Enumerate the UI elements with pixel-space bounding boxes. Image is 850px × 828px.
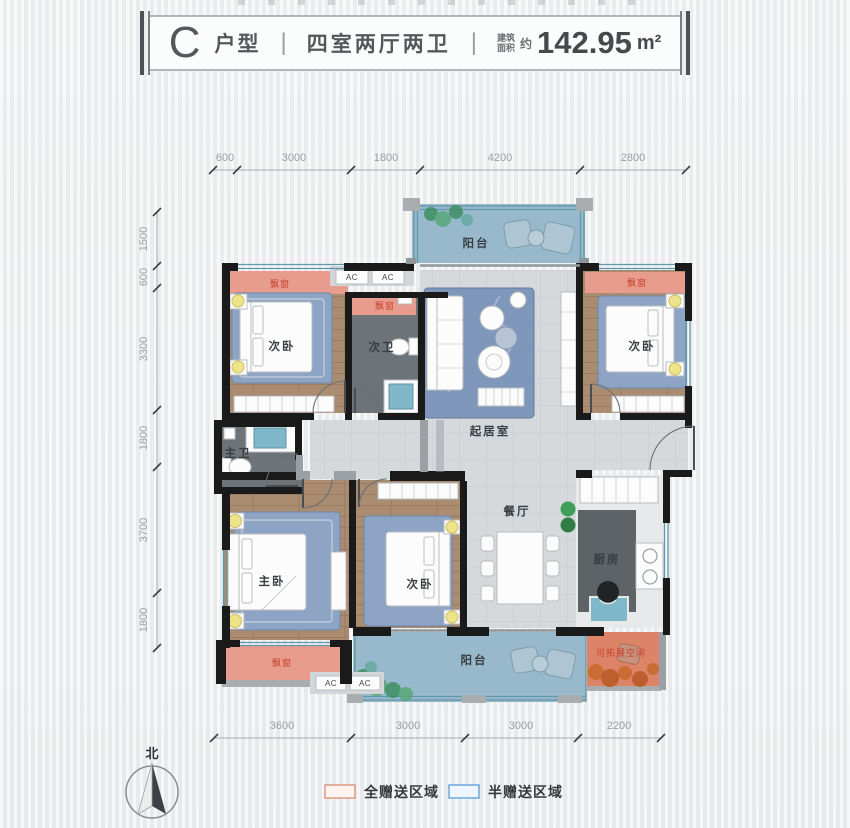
- balcony-bottom-label: 阳台: [461, 653, 488, 667]
- ac-label: AC: [382, 273, 394, 282]
- north-label: 北: [145, 746, 158, 761]
- dim-left-2: 3300: [138, 337, 150, 361]
- legend-label-half-gift: 半赠送区域: [488, 784, 563, 800]
- compass: 北: [126, 746, 178, 818]
- ac-label: AC: [359, 679, 371, 688]
- balcony-top-label: 阳台: [463, 236, 490, 250]
- floorplan-page: C 户型 | 四室两厅两卫 | 建筑 面积 约 142.95 m²: [0, 0, 850, 828]
- dim-top-1: 3000: [282, 152, 306, 164]
- bath-master-label: 主卫: [225, 446, 252, 460]
- dimension-bottom: 3600 3000 3000 2200: [210, 720, 665, 742]
- bay-window-label: 飘窗: [627, 277, 647, 288]
- legend: 全赠送区域 半赠送区域: [325, 784, 563, 800]
- dim-bottom-3: 2200: [607, 720, 631, 732]
- dim-top-4: 2800: [621, 152, 645, 164]
- legend-swatch-half-gift: [449, 785, 479, 798]
- legend-label-full-gift: 全赠送区域: [363, 784, 439, 800]
- bath-secondary-label: 次卫: [369, 340, 396, 354]
- dim-left-4: 3700: [138, 518, 150, 542]
- dimension-left: 1500 600 3300 1800 3700 1800: [138, 208, 161, 652]
- bedroom-master-furniture: [226, 512, 346, 630]
- bay-window-label: 飘窗: [272, 657, 292, 668]
- dim-left-1: 600: [138, 268, 150, 286]
- dim-top-3: 4200: [488, 152, 512, 164]
- ac-label: AC: [325, 679, 337, 688]
- ac-label: AC: [346, 273, 358, 282]
- living-label: 起居室: [469, 424, 511, 438]
- dim-bottom-2: 3000: [509, 720, 533, 732]
- bedroom-tl-label: 次卧: [269, 339, 296, 353]
- plant-icon: [561, 502, 576, 517]
- legend-swatch-full-gift: [325, 785, 355, 798]
- floorplan-svg: AC AC AC AC: [0, 0, 850, 828]
- dim-bottom-0: 3600: [270, 720, 294, 732]
- plant-icon: [561, 518, 576, 533]
- expandable-area: [587, 632, 666, 691]
- dim-top-0: 600: [216, 152, 234, 164]
- dim-left-5: 1800: [138, 608, 150, 632]
- dim-left-3: 1800: [138, 426, 150, 450]
- bedroom-master-label: 主卧: [259, 574, 286, 588]
- compass-needle-light: [138, 763, 152, 814]
- expandable-label: 可拓展空间: [596, 647, 646, 658]
- bay-window-label: 飘窗: [270, 278, 290, 289]
- dining-label: 餐厅: [503, 504, 531, 518]
- dimension-top: 600 3000 1800 4200 2800: [209, 152, 690, 174]
- compass-needle-dark: [152, 763, 166, 814]
- dim-left-0: 1500: [138, 227, 150, 251]
- dim-top-2: 1800: [374, 152, 398, 164]
- bedroom-mid-label: 次卧: [407, 577, 434, 591]
- bay-window-label: 飘窗: [375, 300, 395, 311]
- balcony-top: [403, 198, 593, 263]
- dim-bottom-1: 3000: [396, 720, 420, 732]
- kitchen-stool: [597, 581, 619, 603]
- bedroom-tr-label: 次卧: [629, 339, 656, 353]
- kitchen-label: 厨房: [594, 552, 621, 566]
